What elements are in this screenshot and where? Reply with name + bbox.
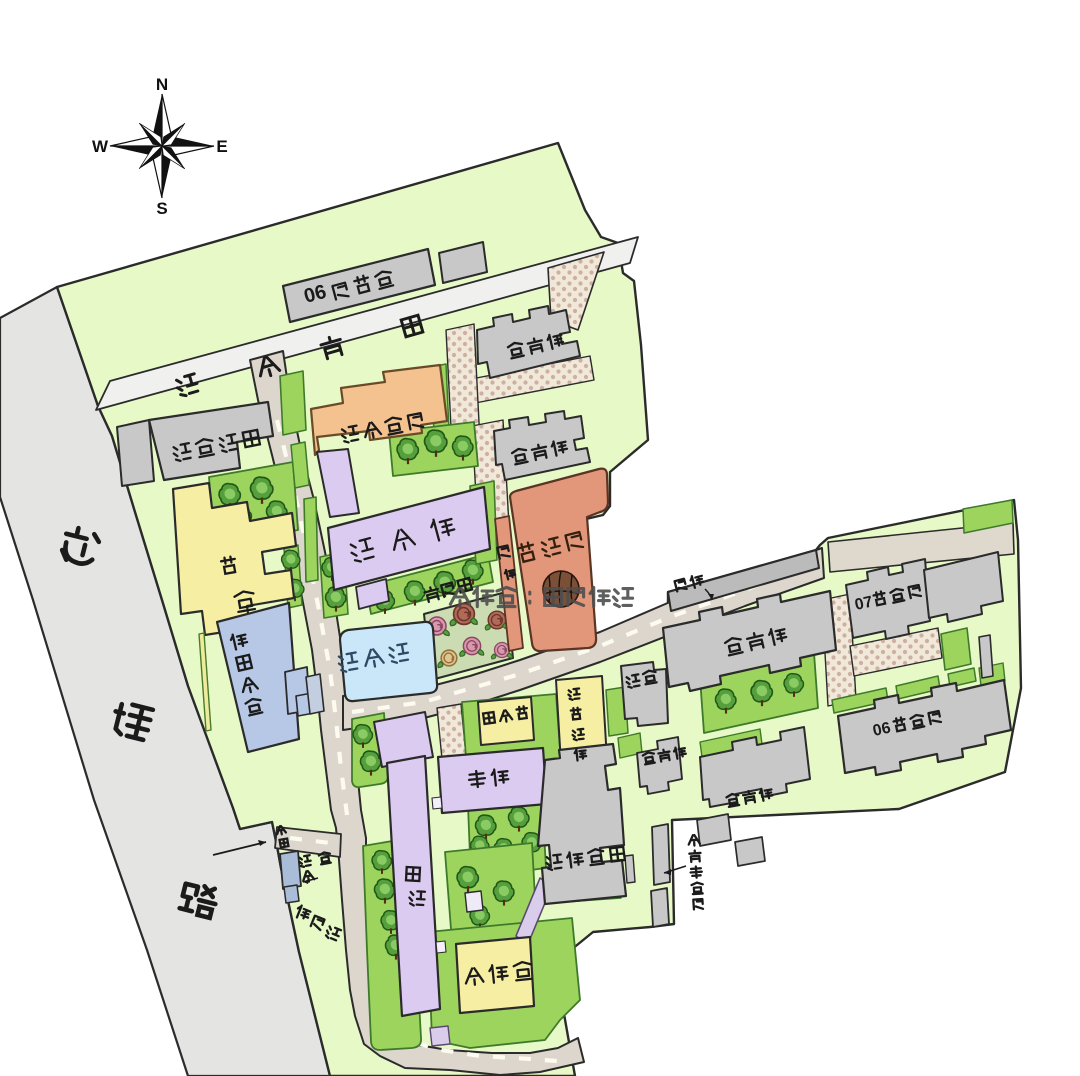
svg-text:N: N [156, 75, 168, 94]
svg-text:06: 06 [871, 720, 892, 740]
svg-text:07: 07 [853, 594, 874, 614]
svg-text:S: S [156, 199, 167, 218]
svg-text:E: E [216, 137, 227, 156]
svg-text:W: W [92, 137, 109, 156]
